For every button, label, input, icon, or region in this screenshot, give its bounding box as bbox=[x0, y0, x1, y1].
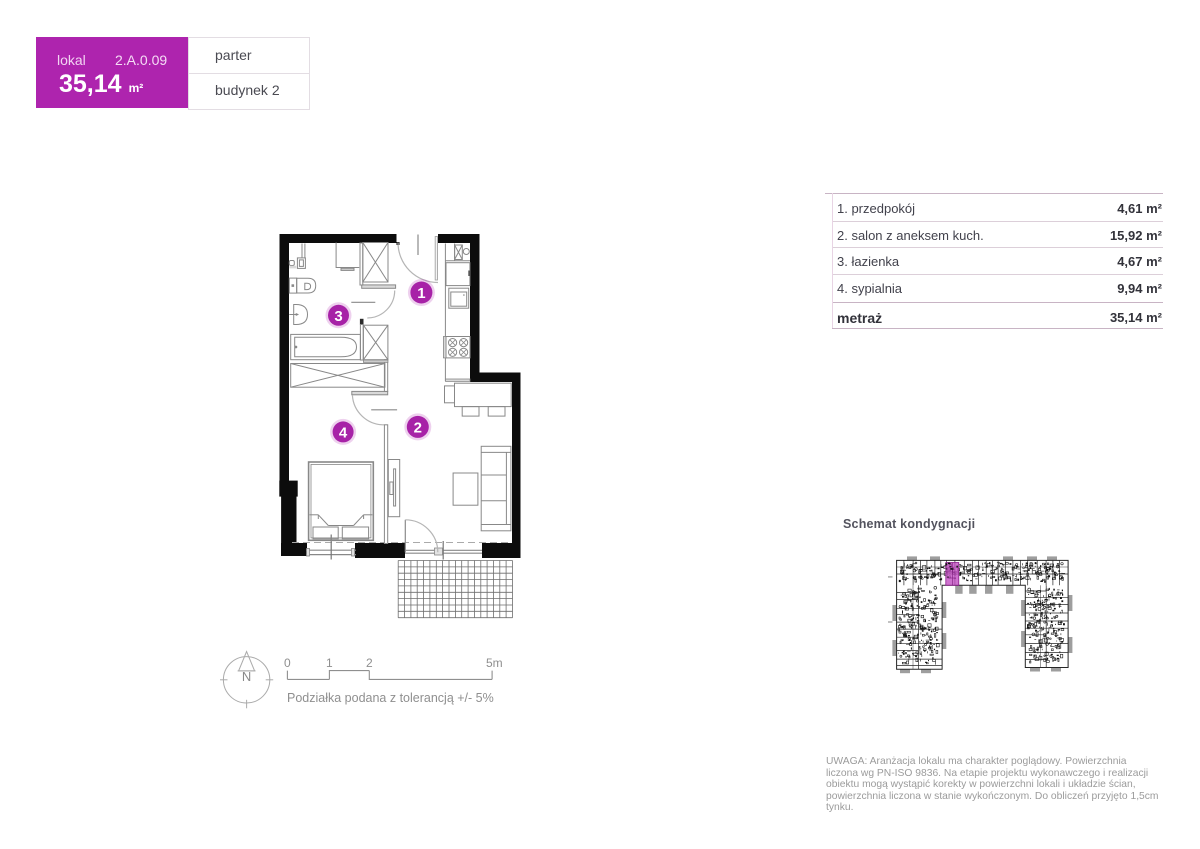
svg-text:5m: 5m bbox=[486, 656, 503, 670]
svg-text:2: 2 bbox=[414, 419, 422, 436]
svg-text:1: 1 bbox=[326, 656, 333, 670]
svg-text:2: 2 bbox=[366, 656, 373, 670]
svg-text:0: 0 bbox=[284, 656, 291, 670]
svg-text:1: 1 bbox=[417, 285, 425, 302]
svg-text:4: 4 bbox=[339, 424, 348, 441]
svg-text:3: 3 bbox=[334, 308, 342, 325]
svg-text:N: N bbox=[242, 669, 251, 684]
